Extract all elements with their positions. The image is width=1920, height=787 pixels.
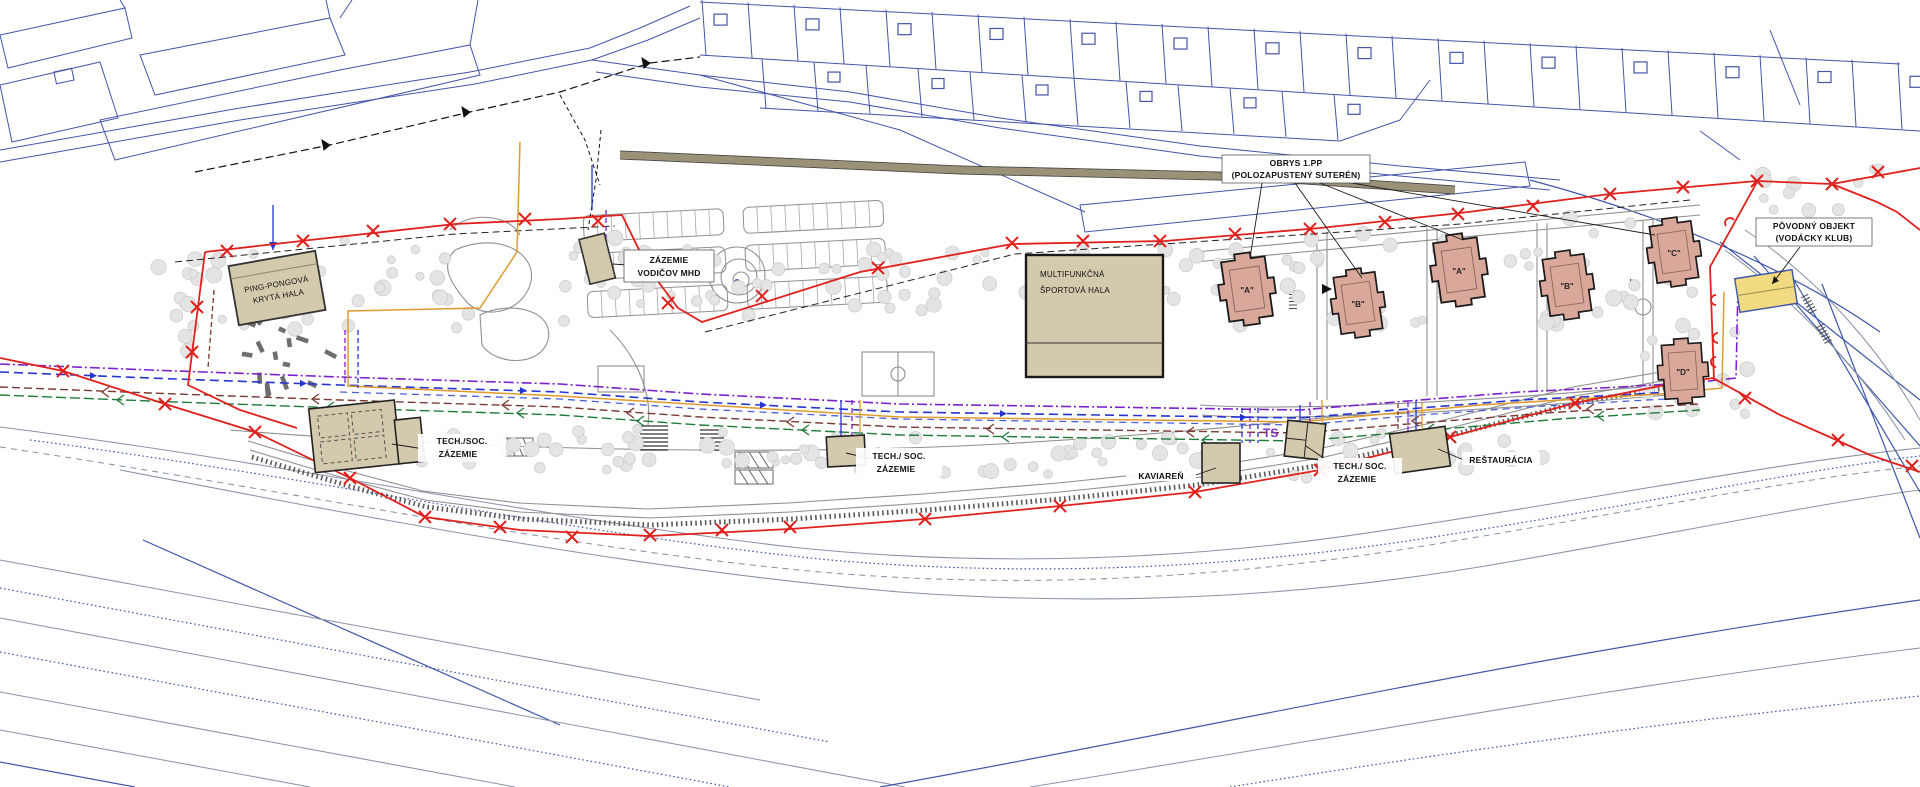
tree-icon bbox=[772, 263, 785, 276]
parcel-divider bbox=[702, 0, 706, 55]
parking-stall-divider bbox=[775, 282, 776, 308]
tree-icon bbox=[1730, 327, 1740, 337]
parcel-divider bbox=[814, 62, 818, 111]
boundary-x-mark bbox=[1006, 237, 1018, 249]
flow-arrow-icon bbox=[1240, 414, 1247, 421]
tree-icon bbox=[439, 253, 450, 264]
tree-icon bbox=[819, 263, 830, 274]
parcel-divider bbox=[1208, 26, 1212, 86]
tree-icon bbox=[549, 443, 563, 457]
tech-soc-3-label-2: ZÁZEMIE bbox=[1338, 474, 1377, 484]
tree-icon bbox=[1534, 248, 1543, 257]
parking-stall-divider bbox=[843, 240, 844, 266]
obrys-label-2: (POLOZAPUSTENÝ SUTERÉN) bbox=[1232, 169, 1361, 180]
flow-arrow-icon bbox=[300, 380, 307, 387]
parcel-divider bbox=[1392, 36, 1396, 98]
tree-icon bbox=[878, 252, 887, 261]
parcel-dividers bbox=[702, 0, 1920, 139]
tree-icon bbox=[1640, 352, 1649, 361]
tree-icon bbox=[1051, 446, 1066, 461]
tree-icon bbox=[1383, 238, 1397, 252]
house-symbol bbox=[1450, 52, 1463, 63]
house-symbol bbox=[1036, 85, 1048, 95]
brown-branch-icon bbox=[627, 408, 634, 418]
house-symbol bbox=[806, 19, 819, 30]
house-symbol bbox=[1358, 48, 1371, 59]
tree-icon bbox=[1280, 278, 1295, 293]
house-symbol bbox=[1542, 57, 1555, 68]
tree-icon bbox=[352, 295, 364, 307]
parking-stall-divider bbox=[601, 291, 602, 317]
tree-icon bbox=[1136, 439, 1146, 449]
house-symbol bbox=[1910, 76, 1920, 87]
parking-stall-divider bbox=[827, 203, 828, 229]
flow-arrow-icon bbox=[1000, 410, 1007, 417]
tree-icon bbox=[1301, 473, 1312, 484]
tree-icon bbox=[1592, 307, 1603, 318]
tree-icon bbox=[1539, 315, 1555, 331]
parcel-divider bbox=[918, 69, 922, 117]
sports-hall-label-1: MULTIFUNKČNÁ bbox=[1040, 270, 1105, 279]
gym-equipment-icon bbox=[286, 338, 292, 348]
boundary-x-mark bbox=[344, 472, 356, 484]
tree-icon bbox=[524, 442, 539, 457]
tree-icon bbox=[1282, 255, 1292, 265]
tree-icon bbox=[1504, 255, 1517, 268]
boundary-x-mark bbox=[367, 225, 379, 237]
povodny-label-1: PÔVODNÝ OBJEKT bbox=[1773, 220, 1856, 231]
tree-icon bbox=[983, 277, 997, 291]
brown-branch-icon bbox=[1587, 404, 1594, 414]
tree-icon bbox=[178, 329, 192, 343]
tech-soc-2-label-2: ZÁZEMIE bbox=[877, 464, 916, 474]
tree-icon bbox=[387, 268, 398, 279]
gym-equipment-icon bbox=[282, 362, 290, 368]
sports-hall-label-2: ŠPORTOVÁ HALA bbox=[1040, 286, 1110, 295]
gym-equipment-icon bbox=[242, 352, 253, 358]
parcel-divider bbox=[1300, 31, 1304, 92]
cadastral-parcels bbox=[0, 0, 1920, 232]
building-cafe bbox=[1202, 443, 1240, 483]
parcel-divider bbox=[1898, 62, 1902, 129]
boundary-x-mark bbox=[1527, 200, 1539, 212]
tree-icon bbox=[1676, 318, 1691, 333]
tree-icon bbox=[170, 309, 183, 322]
parcel-divider bbox=[794, 5, 798, 61]
tree-icon bbox=[642, 453, 656, 467]
parcel-divider bbox=[1576, 46, 1580, 110]
building-povodny bbox=[1735, 270, 1798, 313]
tree-icon bbox=[1098, 457, 1107, 466]
residential-label-C: "C" bbox=[1667, 249, 1681, 258]
tree-icon bbox=[710, 295, 720, 305]
tree-icon bbox=[1179, 259, 1192, 272]
tree-icon bbox=[1832, 204, 1844, 216]
parking-stall-divider bbox=[653, 212, 654, 238]
site-plan-drawing: PING-PONGOVÁ KRYTÁ HALA MULTIFUNKČNÁ ŠPO… bbox=[0, 0, 1920, 787]
house-symbol bbox=[1818, 72, 1831, 83]
house-symbol bbox=[990, 28, 1003, 39]
tree-icon bbox=[602, 465, 611, 474]
tree-icon bbox=[1525, 262, 1534, 271]
tree-icon bbox=[1266, 448, 1274, 456]
parcel-divider bbox=[1806, 58, 1810, 124]
tree-icon bbox=[900, 266, 911, 277]
parking-stall-divider bbox=[857, 240, 858, 266]
parking-stall-divider bbox=[841, 202, 842, 228]
parcel-divider bbox=[1070, 19, 1074, 78]
residential-label-A2: "A" bbox=[1452, 267, 1466, 276]
tree-icon bbox=[374, 283, 384, 293]
tree-icon bbox=[1343, 443, 1358, 458]
tree-icon bbox=[1370, 436, 1379, 445]
tree-icon bbox=[302, 313, 314, 325]
parcel-divider bbox=[970, 72, 974, 120]
tree-icon bbox=[607, 230, 623, 246]
tree-icon bbox=[700, 438, 716, 454]
gym-equipment-icon bbox=[265, 386, 270, 397]
gym-equipment-icon bbox=[273, 351, 279, 360]
tree-icon bbox=[288, 322, 302, 336]
tree-icon bbox=[719, 440, 735, 456]
building-ts bbox=[1284, 420, 1326, 460]
tree-icon bbox=[1028, 462, 1038, 472]
parcel-divider bbox=[1530, 43, 1534, 106]
parking-stall-divider bbox=[845, 278, 846, 304]
mhd-label-2: VODIČOV MHD bbox=[637, 267, 700, 278]
parcel-divider bbox=[1024, 17, 1028, 75]
parcel-divider bbox=[840, 7, 844, 63]
tree-icon bbox=[452, 323, 462, 333]
house-symbol bbox=[1174, 38, 1187, 49]
green-branch-icon bbox=[517, 408, 524, 418]
parking-stall-divider bbox=[685, 287, 686, 313]
tree-icon bbox=[189, 269, 198, 278]
parking-stall-divider bbox=[757, 207, 758, 233]
parcel-divider bbox=[1438, 38, 1442, 100]
tree-icon bbox=[1740, 362, 1755, 377]
parcel-divider bbox=[978, 14, 982, 72]
parcel-divider bbox=[1230, 88, 1234, 134]
tree-icon bbox=[799, 445, 809, 455]
parcel-divider bbox=[1074, 78, 1078, 125]
tree-icon bbox=[983, 464, 998, 479]
boundary-x-mark bbox=[159, 398, 171, 410]
parking-stall-divider bbox=[681, 211, 682, 237]
parcel-divider bbox=[1178, 85, 1182, 131]
tree-icon bbox=[151, 260, 166, 275]
parking-stall-divider bbox=[873, 277, 874, 303]
parking-stall-divider bbox=[709, 209, 710, 235]
parking-stall-divider bbox=[869, 201, 870, 227]
house-symbol bbox=[1348, 104, 1360, 114]
mhd-label-1: ZÁZEMIE bbox=[650, 255, 689, 265]
parking-stall-divider bbox=[803, 280, 804, 306]
tree-icon bbox=[1606, 290, 1622, 306]
parking-stall-divider bbox=[855, 202, 856, 228]
tree-icon bbox=[1647, 336, 1657, 346]
parking-stall-divider bbox=[695, 210, 696, 236]
tree-icon bbox=[973, 256, 981, 264]
tree-icon bbox=[718, 428, 727, 437]
parking-stall-divider bbox=[829, 241, 830, 267]
parcel-divider bbox=[748, 2, 752, 57]
parcel-divider bbox=[1022, 75, 1026, 122]
parcel-divider bbox=[1852, 60, 1856, 127]
residential-label-A1: "A" bbox=[1240, 286, 1254, 295]
tree-icon bbox=[1589, 229, 1598, 238]
tree-icon bbox=[848, 299, 861, 312]
residential-label-D: "D" bbox=[1676, 368, 1690, 377]
gym-equipment-icon bbox=[324, 349, 337, 359]
tree-icon bbox=[909, 431, 921, 443]
tree-icon bbox=[1769, 205, 1778, 214]
gym-equipment-icon bbox=[256, 341, 265, 353]
tree-icon bbox=[1688, 328, 1700, 340]
tree-icon bbox=[1044, 470, 1053, 479]
tree-icon bbox=[633, 424, 643, 434]
house-symbol bbox=[1244, 98, 1256, 108]
tree-icon bbox=[735, 453, 749, 467]
tree-icon bbox=[761, 280, 772, 291]
tree-icon bbox=[722, 458, 732, 468]
parking-stall-divider bbox=[785, 205, 786, 231]
tree-icon bbox=[732, 281, 746, 295]
tree-icon bbox=[206, 267, 222, 283]
tree-icon bbox=[1311, 251, 1325, 265]
tree-icon bbox=[937, 271, 952, 286]
tree-icon bbox=[573, 426, 585, 438]
tree-icon bbox=[1629, 280, 1640, 291]
restaurant-label: REŠTAURÁCIA bbox=[1469, 454, 1532, 465]
tree-icon bbox=[692, 296, 703, 307]
tree-icon bbox=[752, 279, 761, 288]
parcel-divider bbox=[1334, 94, 1338, 139]
flow-arrow-icon bbox=[520, 387, 527, 394]
tree-icon bbox=[218, 315, 226, 323]
tree-icon bbox=[781, 456, 789, 464]
tree-icon bbox=[1167, 292, 1180, 305]
tree-icon bbox=[1783, 187, 1794, 198]
tree-icon bbox=[1623, 295, 1638, 310]
tree-icon bbox=[1356, 226, 1371, 241]
tree-icon bbox=[946, 246, 960, 260]
parcel-divider bbox=[1714, 53, 1718, 118]
flow-direction-arrows bbox=[90, 372, 1247, 421]
parcel-divider bbox=[866, 65, 870, 114]
tree-icon bbox=[416, 272, 424, 280]
parking-stall-divider bbox=[667, 212, 668, 238]
parcel-divider bbox=[1484, 41, 1488, 104]
tree-icon bbox=[929, 288, 940, 299]
tree-icon bbox=[1293, 262, 1305, 274]
gym-equipment-icon bbox=[296, 335, 309, 343]
tree-icon bbox=[560, 280, 572, 292]
parcel-divider bbox=[886, 10, 890, 67]
tree-icon bbox=[1687, 287, 1698, 298]
tree-icon bbox=[832, 264, 841, 273]
parking-stall-divider bbox=[629, 290, 630, 316]
boundary-x-mark bbox=[519, 213, 531, 225]
ts-label: TS bbox=[1263, 426, 1278, 440]
tech-soc-1-label-1: TECH./SOC. bbox=[437, 436, 488, 446]
parking-stall-divider bbox=[657, 288, 658, 314]
gym-equipment-icon bbox=[278, 326, 286, 333]
tree-icon bbox=[535, 462, 546, 473]
tree-icon bbox=[1498, 435, 1511, 448]
parcel-divider bbox=[762, 59, 766, 108]
parking-stall-divider bbox=[817, 280, 818, 306]
parking-stall-divider bbox=[815, 242, 816, 268]
tree-icon bbox=[1162, 431, 1176, 445]
tech-soc-1-label-2: ZÁZEMIE bbox=[439, 449, 478, 459]
tree-icon bbox=[1069, 449, 1078, 458]
parking-stall-divider bbox=[801, 243, 802, 269]
building-tech-soc-1 bbox=[309, 397, 425, 472]
boundary-x-mark bbox=[784, 521, 796, 533]
tech-soc-2-label-1: TECH./ SOC. bbox=[872, 451, 925, 461]
house-symbol bbox=[714, 14, 727, 25]
house-symbol bbox=[1082, 33, 1095, 44]
parcel-divider bbox=[932, 12, 936, 69]
tree-icon bbox=[1092, 448, 1102, 458]
tree-icon bbox=[1189, 248, 1204, 263]
flow-arrow-icon bbox=[90, 372, 97, 379]
tree-icon bbox=[188, 321, 199, 332]
obrys-label-1: OBRYS 1.PP bbox=[1270, 158, 1323, 168]
tree-icon bbox=[1520, 249, 1530, 259]
parcel-divider bbox=[1668, 50, 1672, 115]
tree-icon bbox=[767, 451, 778, 462]
house-symbol bbox=[898, 24, 911, 35]
tree-icon bbox=[608, 286, 621, 299]
house-symbol bbox=[828, 72, 840, 82]
house-symbol bbox=[1726, 67, 1739, 78]
tree-icon bbox=[411, 245, 420, 254]
tree-icon bbox=[506, 438, 520, 452]
parcel-divider bbox=[1622, 48, 1626, 112]
parking-stall-divider bbox=[813, 204, 814, 230]
house-symbol bbox=[1266, 43, 1279, 54]
tree-icon bbox=[624, 453, 635, 464]
parcel-divider bbox=[1126, 81, 1130, 128]
tree-icon bbox=[430, 271, 445, 286]
parking-stall-divider bbox=[771, 206, 772, 232]
tree-icon bbox=[387, 256, 395, 264]
tree-icon bbox=[926, 297, 941, 312]
house-symbol bbox=[1634, 62, 1647, 73]
parcel-divider bbox=[1346, 34, 1350, 95]
tree-icon bbox=[623, 431, 635, 443]
tree-icon bbox=[916, 305, 927, 316]
tree-icon bbox=[613, 456, 624, 467]
parking-stall-divider bbox=[625, 214, 626, 240]
parcel-divider bbox=[1162, 24, 1166, 84]
parcel-divider bbox=[1282, 91, 1286, 137]
boundary-x-mark bbox=[1832, 434, 1844, 446]
flow-arrow-icon bbox=[760, 402, 767, 409]
tree-icon bbox=[885, 303, 895, 313]
building-sports-hall: MULTIFUNKČNÁ ŠPORTOVÁ HALA bbox=[1026, 255, 1163, 377]
parcel-divider bbox=[1760, 55, 1764, 121]
residential-label-B2: "B" bbox=[1560, 282, 1574, 291]
tree-icon bbox=[1153, 446, 1168, 461]
tree-icon bbox=[1292, 290, 1305, 303]
tree-icon bbox=[1802, 203, 1816, 217]
tree-icon bbox=[899, 289, 910, 300]
tree-icon bbox=[1073, 437, 1086, 450]
tree-icon bbox=[559, 316, 570, 327]
tree-icon bbox=[790, 453, 802, 465]
parking-stall-divider bbox=[787, 243, 788, 269]
tree-icon bbox=[537, 433, 551, 447]
boundary-x-mark bbox=[716, 524, 728, 536]
residential-label-B1: "B" bbox=[1351, 300, 1365, 309]
tree-icon bbox=[1740, 409, 1749, 418]
tree-icon bbox=[1730, 399, 1740, 409]
parking-stall-divider bbox=[639, 213, 640, 239]
cafe-label: KAVIAREŇ bbox=[1138, 470, 1183, 481]
house-symbol bbox=[932, 79, 944, 89]
tree-icon bbox=[1759, 194, 1768, 203]
boundary-x-mark bbox=[221, 245, 233, 257]
tree-icon bbox=[1101, 435, 1116, 450]
tree-icon bbox=[1625, 218, 1636, 229]
parcel-divider bbox=[1254, 29, 1258, 90]
tree-icon bbox=[462, 307, 475, 320]
building-ping-pong-hall: PING-PONGOVÁ KRYTÁ HALA bbox=[228, 251, 325, 325]
tree-icon bbox=[1418, 316, 1426, 324]
parking-stall-divider bbox=[799, 205, 800, 231]
tree-icon bbox=[878, 290, 891, 303]
tree-icon bbox=[637, 300, 645, 308]
tree-icon bbox=[1177, 443, 1188, 454]
tree-icon bbox=[433, 290, 448, 305]
tech-soc-3-label-1: TECH./ SOC. bbox=[1333, 461, 1386, 471]
tree-icon bbox=[1004, 459, 1016, 471]
tree-icon bbox=[569, 251, 578, 260]
house-symbol bbox=[1140, 91, 1152, 101]
parcel-divider bbox=[1116, 22, 1120, 81]
tree-icon bbox=[601, 443, 614, 456]
povodny-label-2: (VODÁCKY KLUB) bbox=[1776, 233, 1853, 243]
